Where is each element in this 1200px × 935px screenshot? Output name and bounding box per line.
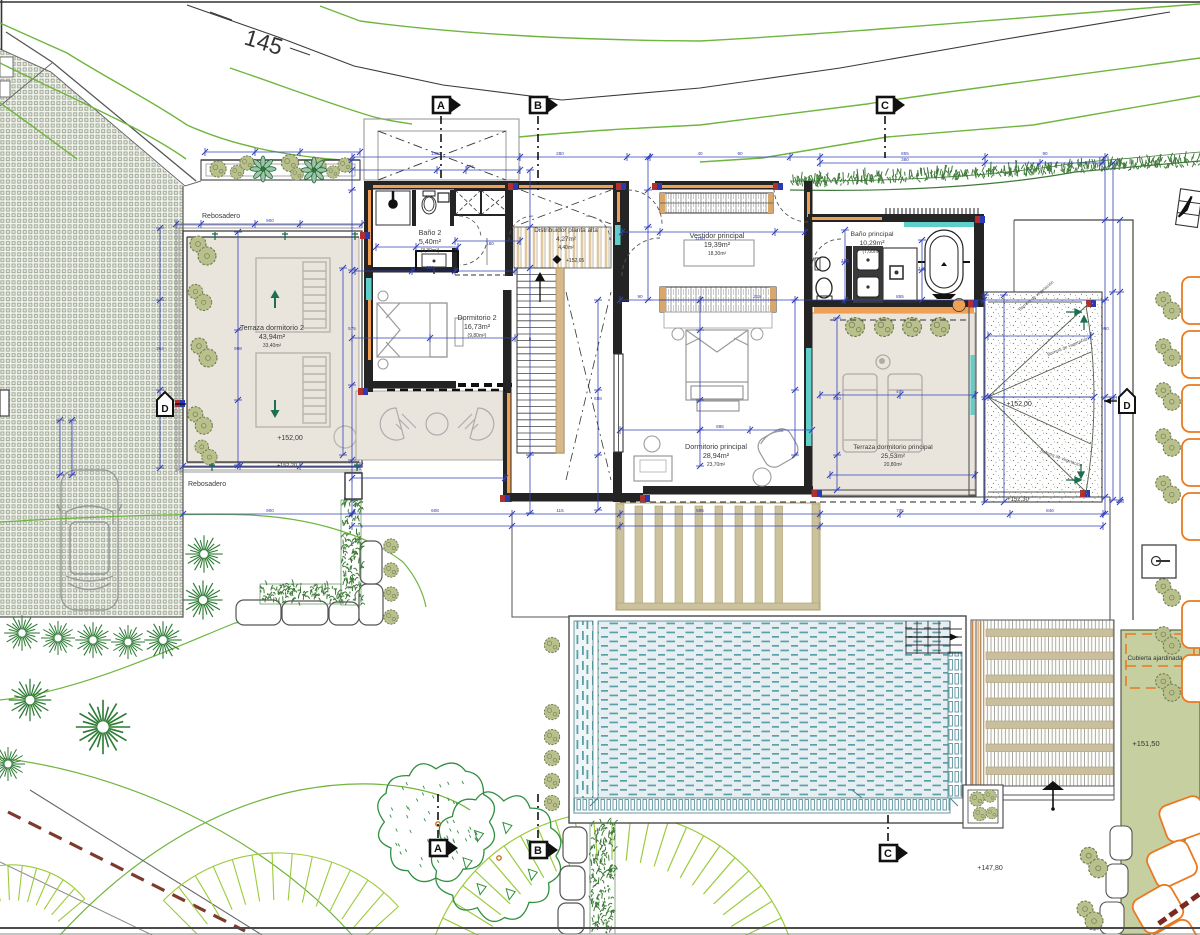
svg-text:C: C	[881, 100, 889, 112]
svg-text:575: 575	[348, 326, 356, 331]
svg-text:+152,00: +152,00	[1006, 401, 1032, 408]
svg-text:1360: 1360	[431, 151, 442, 156]
svg-text:28,94m²: 28,94m²	[703, 451, 730, 460]
svg-text:19,39m²: 19,39m²	[704, 240, 731, 249]
svg-text:33,40m²: 33,40m²	[263, 343, 282, 349]
svg-text:Vestidor principal: Vestidor principal	[690, 231, 745, 240]
svg-text:p: p	[529, 336, 532, 341]
svg-text:Terraza dormitorio 2: Terraza dormitorio 2	[240, 323, 304, 332]
svg-text:Cubierta ajardinada: Cubierta ajardinada	[1128, 655, 1183, 662]
svg-text:900: 900	[266, 508, 274, 513]
svg-text:43,94m²: 43,94m²	[259, 332, 286, 341]
svg-text:Rebosadero: Rebosadero	[202, 213, 240, 220]
svg-text:855: 855	[901, 151, 909, 156]
svg-text:Rebosadero: Rebosadero	[188, 481, 226, 488]
svg-text:280: 280	[556, 151, 564, 156]
svg-text:4,27m²: 4,27m²	[556, 236, 576, 243]
svg-text:215: 215	[753, 294, 761, 299]
svg-text:(9,80m²): (9,80m²)	[468, 333, 487, 339]
svg-text:90: 90	[737, 151, 743, 156]
svg-text:608: 608	[431, 508, 439, 513]
svg-text:846: 846	[1046, 508, 1054, 513]
svg-text:Baño 2: Baño 2	[419, 228, 442, 237]
svg-text:A: A	[434, 843, 442, 855]
svg-text:595: 595	[696, 508, 704, 513]
svg-text:B: B	[534, 100, 542, 112]
svg-text:16,73m²: 16,73m²	[464, 322, 491, 331]
svg-text:10,29m²: 10,29m²	[860, 240, 886, 247]
svg-text:23,70m²: 23,70m²	[707, 462, 726, 468]
svg-text:142: 142	[918, 266, 926, 271]
svg-text:990: 990	[1101, 326, 1109, 331]
svg-text:475: 475	[896, 389, 904, 394]
svg-text:100: 100	[841, 258, 849, 263]
svg-text:D: D	[1123, 401, 1130, 412]
svg-text:A: A	[437, 100, 445, 112]
svg-text:5,40m²: 5,40m²	[419, 237, 442, 246]
svg-text:25,53m²: 25,53m²	[881, 453, 906, 460]
svg-text:364: 364	[156, 346, 164, 351]
svg-text:C: C	[884, 848, 892, 860]
svg-text:Dormitorio principal: Dormitorio principal	[685, 442, 747, 451]
svg-text:380: 380	[901, 157, 909, 162]
svg-text:Baño principal: Baño principal	[850, 231, 894, 238]
svg-text:18,30m²: 18,30m²	[708, 251, 727, 257]
svg-text:+152,30: +152,30	[1007, 497, 1030, 503]
svg-text:608: 608	[426, 265, 434, 270]
svg-text:476: 476	[466, 164, 474, 169]
svg-text:(7,00m²): (7,00m²)	[863, 249, 882, 255]
svg-text:900: 900	[266, 218, 274, 223]
svg-text:115: 115	[556, 508, 564, 513]
svg-text:180: 180	[486, 241, 494, 246]
svg-text:+147,80: +147,80	[977, 865, 1003, 872]
svg-text:90: 90	[637, 294, 643, 299]
svg-text:D: D	[161, 404, 168, 415]
svg-text:Terraza dormitorio principal: Terraza dormitorio principal	[853, 444, 933, 451]
svg-text:40: 40	[697, 151, 703, 156]
svg-text:886: 886	[716, 424, 724, 429]
svg-text:B: B	[534, 845, 542, 857]
svg-text:(3,30m²): (3,30m²)	[421, 248, 440, 254]
svg-text:20,80m²: 20,80m²	[884, 462, 903, 468]
svg-text:4,40m²: 4,40m²	[558, 245, 574, 251]
svg-text:688: 688	[594, 396, 602, 401]
svg-text:+152,65: +152,65	[566, 258, 584, 264]
svg-text:+152,00: +152,00	[277, 435, 303, 442]
svg-text:+151,50: +151,50	[1132, 739, 1159, 748]
svg-text:908: 908	[234, 346, 242, 351]
svg-text:+152,20: +152,20	[277, 463, 297, 469]
svg-text:90: 90	[1042, 151, 1048, 156]
svg-text:890: 890	[833, 396, 841, 401]
svg-text:775: 775	[896, 508, 904, 513]
svg-text:855: 855	[896, 294, 904, 299]
svg-text:Distribuidor planta alta: Distribuidor planta alta	[534, 227, 598, 234]
svg-text:Dormitorio 2: Dormitorio 2	[457, 313, 496, 322]
